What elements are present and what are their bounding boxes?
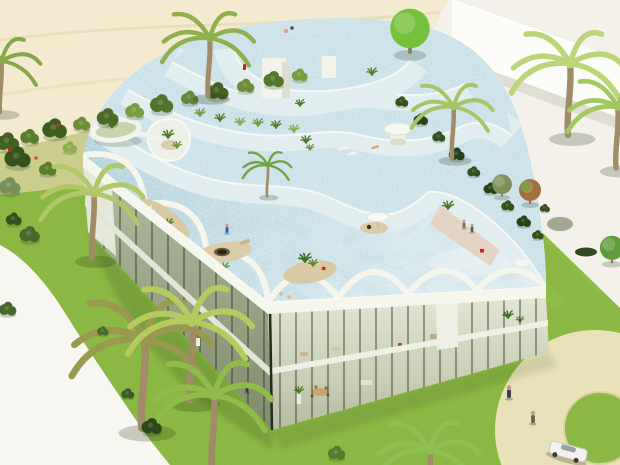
rendering-image — [0, 0, 620, 465]
round-tree — [390, 9, 430, 61]
swimmer — [279, 292, 283, 296]
dark-hedge — [575, 248, 597, 257]
swimmer — [287, 295, 291, 299]
orange-flower — [34, 156, 38, 160]
fire-pit-center — [217, 249, 227, 254]
roof-figure — [290, 26, 294, 30]
red-figure — [243, 64, 246, 70]
red-chair — [322, 267, 326, 271]
tree-foliage — [521, 181, 531, 191]
gray-tree — [547, 217, 573, 231]
scene-canvas — [0, 0, 620, 465]
red-chair — [480, 249, 484, 253]
interior-planter — [196, 338, 200, 346]
red-flower — [56, 123, 59, 126]
red-flower — [8, 148, 12, 152]
roof-table — [515, 260, 529, 267]
roof-figure — [284, 29, 288, 33]
